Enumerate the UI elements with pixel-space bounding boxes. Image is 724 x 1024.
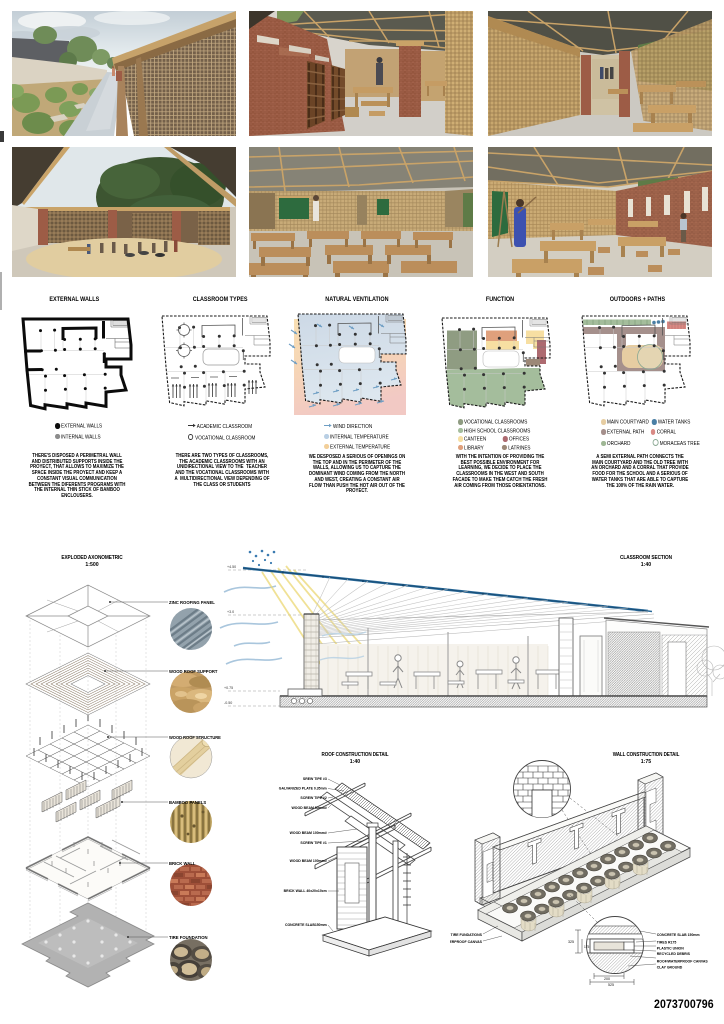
svg-text:WOOD ROOF SUPPORT: WOOD ROOF SUPPORT	[169, 669, 218, 674]
svg-text:WATERPROOF CANVAS: WATERPROOF CANVAS	[450, 940, 483, 944]
svg-text:BRICK WALL 40x20x10cm: BRICK WALL 40x20x10cm	[284, 889, 327, 893]
svg-text:SCREW TIPE #1: SCREW TIPE #1	[300, 841, 326, 845]
svg-text:ROOF/WATERPROOF CANVAS: ROOF/WATERPROOF CANVAS	[657, 959, 708, 963]
svg-text:-0.50: -0.50	[224, 701, 232, 705]
svg-text:WOOD BEAM 100mm#: WOOD BEAM 100mm#	[290, 859, 327, 863]
svg-text:1:75: 1:75	[641, 759, 651, 765]
svg-text:200: 200	[604, 977, 610, 981]
svg-text:525: 525	[608, 983, 614, 987]
svg-text:1:40: 1:40	[350, 759, 360, 765]
svg-text:WOOD ROOF STRUCTURE: WOOD ROOF STRUCTURE	[169, 735, 221, 740]
svg-text:175: 175	[584, 945, 590, 949]
svg-text:1:500: 1:500	[85, 562, 98, 568]
svg-text:TIRES R175: TIRES R175	[657, 940, 676, 944]
svg-text:+3.0: +3.0	[227, 610, 234, 614]
svg-text:1:40: 1:40	[641, 562, 651, 568]
svg-text:SCREW TIPE #2: SCREW TIPE #2	[300, 796, 326, 800]
svg-text:325: 325	[568, 940, 574, 944]
svg-text:GALVANIZED PLATE 0.35mm: GALVANIZED PLATE 0.35mm	[279, 786, 327, 790]
svg-text:ROOF CONSTRUCTION DETAIL: ROOF CONSTRUCTION DETAIL	[322, 752, 389, 759]
svg-text:WOOD BEAM 50mm#: WOOD BEAM 50mm#	[292, 806, 327, 810]
svg-text:CONCRETE SLAB 150mm: CONCRETE SLAB 150mm	[657, 933, 700, 937]
svg-text:TIRE FUNDATIONS: TIRE FUNDATIONS	[451, 933, 483, 937]
svg-text:ZINC ROOFING PANEL: ZINC ROOFING PANEL	[169, 600, 215, 605]
svg-text:WALL CONSTRUCTION DETAIL: WALL CONSTRUCTION DETAIL	[613, 752, 680, 759]
svg-text:PLASTIC UNION: PLASTIC UNION	[657, 946, 684, 950]
svg-text:BAMBOO PANELS: BAMBOO PANELS	[169, 800, 206, 805]
svg-text:+4.50: +4.50	[227, 565, 236, 569]
svg-text:RECYCLED DEBRIS: RECYCLED DEBRIS	[657, 952, 691, 956]
svg-text:CLAY GROUND: CLAY GROUND	[657, 965, 683, 969]
svg-text:TIRE FOUNDATION: TIRE FOUNDATION	[169, 935, 208, 940]
svg-text:BRICK WALL: BRICK WALL	[169, 861, 196, 866]
svg-text:CONCRETE SLAB150mm: CONCRETE SLAB150mm	[285, 923, 327, 927]
svg-text:WOOD BEAM 100mm#: WOOD BEAM 100mm#	[290, 831, 327, 835]
svg-text:CLASSROOM SECTION: CLASSROOM SECTION	[620, 555, 672, 561]
svg-text:EXPLODED AXONOMETRIC: EXPLODED AXONOMETRIC	[61, 555, 123, 561]
svg-text:SREW TIPE #3: SREW TIPE #3	[303, 777, 327, 781]
svg-text:+0.75: +0.75	[224, 686, 233, 690]
